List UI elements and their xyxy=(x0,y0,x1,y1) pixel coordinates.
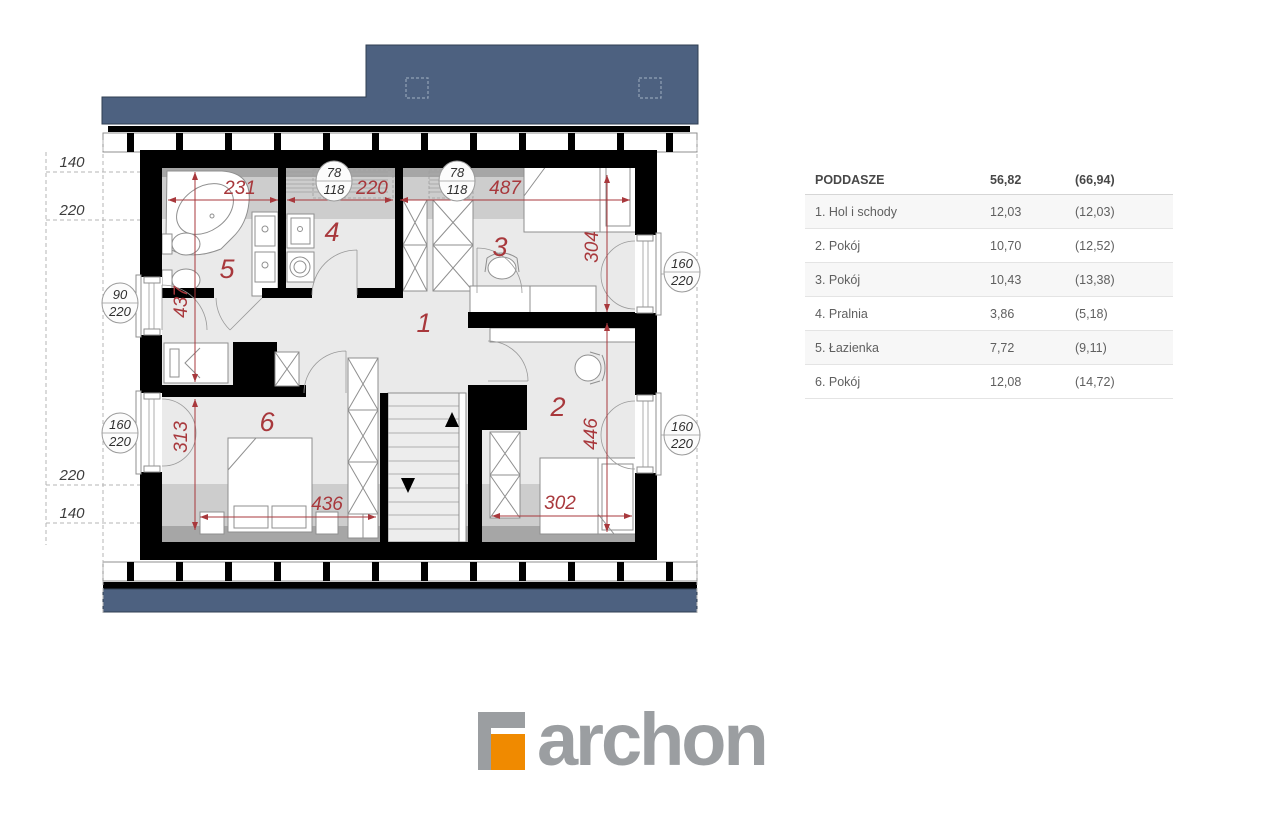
svg-text:160: 160 xyxy=(109,417,131,432)
legend-floor-area: 56,82 xyxy=(990,173,1075,187)
bed xyxy=(524,158,636,232)
desk xyxy=(470,286,596,314)
legend-floor-area-gross: (66,94) xyxy=(1075,173,1173,187)
height-label-140-top: 140 xyxy=(59,154,85,171)
legend-row: 6. Pokój 12,08 (14,72) xyxy=(805,365,1173,399)
legend-row: 3. Pokój 10,43 (13,38) xyxy=(805,263,1173,297)
legend-header-row: PODDASZE 56,82 (66,94) xyxy=(805,166,1173,195)
dim-pralnia-width: 220 xyxy=(355,178,388,199)
svg-text:220: 220 xyxy=(108,434,131,449)
svg-text:160: 160 xyxy=(671,419,693,434)
height-label-220-bottom: 220 xyxy=(58,467,85,484)
room-number-room6: 6 xyxy=(259,407,275,437)
svg-text:78: 78 xyxy=(450,165,465,180)
toilet-bowl xyxy=(172,233,200,255)
svg-text:118: 118 xyxy=(447,182,468,197)
toilet-tank xyxy=(162,234,172,254)
height-label-220-top: 220 xyxy=(58,202,85,219)
stairs xyxy=(388,393,466,542)
marker-left-upper: 90 220 xyxy=(102,283,138,323)
marker-skylight-right: 78 118 xyxy=(439,161,475,201)
archon-logo-text: archon xyxy=(537,712,766,768)
dim-room2-depth: 446 xyxy=(581,418,602,450)
room-number-lazienka: 5 xyxy=(219,254,235,284)
svg-text:90: 90 xyxy=(113,287,128,302)
svg-text:160: 160 xyxy=(671,256,693,271)
marker-right-upper: 160 220 xyxy=(664,252,700,292)
legend-row: 2. Pokój 10,70 (12,52) xyxy=(805,229,1173,263)
dim-room6-depth: 313 xyxy=(171,421,192,453)
archon-logo-icon xyxy=(478,712,525,770)
svg-text:78: 78 xyxy=(327,165,342,180)
room-number-hall: 1 xyxy=(416,308,431,338)
svg-text:118: 118 xyxy=(324,182,345,197)
dim-room3-width: 487 xyxy=(489,178,522,199)
nightstand xyxy=(200,512,224,534)
floorplan-sheet: 140 220 220 140 xyxy=(0,0,1262,808)
closet xyxy=(403,200,473,291)
room-number-room2: 2 xyxy=(549,392,565,422)
nightstand xyxy=(316,512,338,534)
legend-row: 4. Pralnia 3,86 (5,18) xyxy=(805,297,1173,331)
desk xyxy=(490,328,637,342)
svg-text:220: 220 xyxy=(670,436,693,451)
legend-floor-name: PODDASZE xyxy=(805,173,990,187)
washbasin-counter xyxy=(252,212,278,296)
room-number-room3: 3 xyxy=(492,232,507,262)
dim-bath-width: 231 xyxy=(223,178,256,199)
dim-bath-depth: 437 xyxy=(171,285,192,318)
room-number-pralnia: 4 xyxy=(324,217,339,247)
svg-text:220: 220 xyxy=(108,304,131,319)
svg-text:220: 220 xyxy=(670,273,693,288)
roof xyxy=(102,45,698,124)
bed xyxy=(228,438,312,532)
eaves-top xyxy=(103,126,697,152)
legend-row: 1. Hol i schody 12,03 (12,03) xyxy=(805,195,1173,229)
legend-row: 5. Łazienka 7,72 (9,11) xyxy=(805,331,1173,365)
marker-right-lower: 160 220 xyxy=(664,415,700,455)
page: { "plan": { "height_labels": {"top_140":… xyxy=(0,0,1262,808)
dim-room6-width: 436 xyxy=(311,494,343,515)
floorplan-drawing: 140 220 220 140 xyxy=(0,0,1262,808)
marker-left-lower: 160 220 xyxy=(102,413,138,453)
dim-room2-width: 302 xyxy=(544,493,576,514)
marker-skylight-left: 78 118 xyxy=(316,161,352,201)
eaves-bottom xyxy=(103,562,697,612)
height-labels: 140 220 220 140 xyxy=(58,154,85,522)
wardrobe xyxy=(348,358,378,538)
dim-room3-depth: 304 xyxy=(582,231,603,263)
archon-logo: archon xyxy=(478,712,766,770)
height-label-140-bottom: 140 xyxy=(59,505,85,522)
wardrobe xyxy=(490,432,520,518)
room-legend-table: PODDASZE 56,82 (66,94) 1. Hol i schody 1… xyxy=(805,166,1173,399)
